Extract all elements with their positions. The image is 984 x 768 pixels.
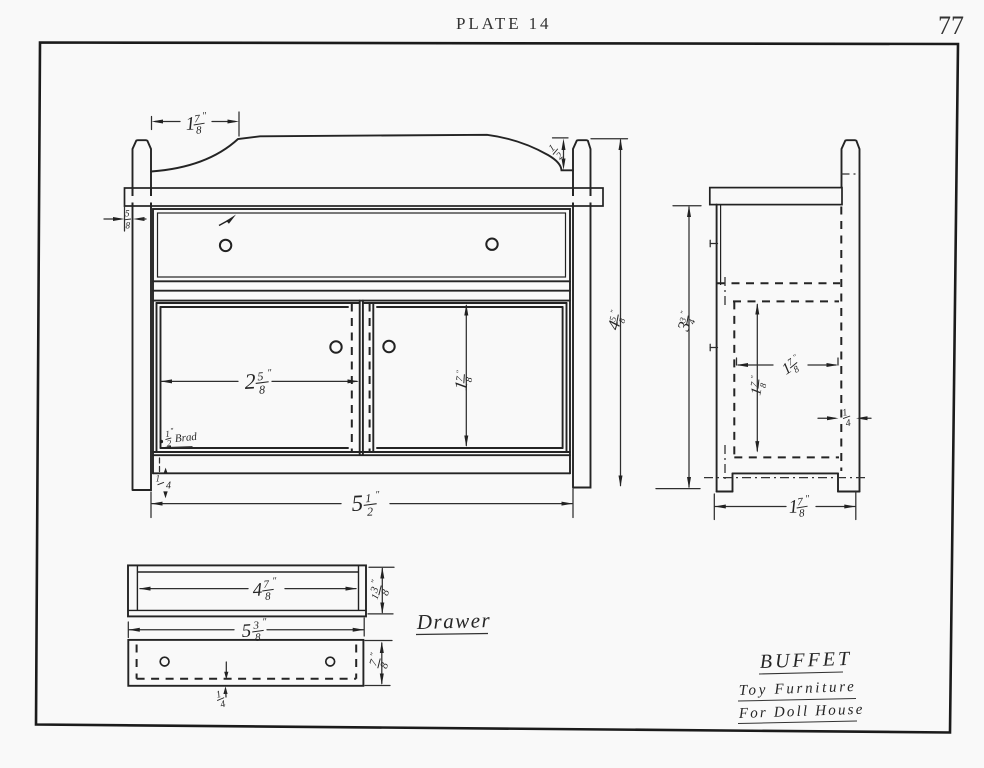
svg-text:″: ″ <box>805 494 811 505</box>
svg-text:Toy Furniture: Toy Furniture <box>739 679 857 699</box>
svg-text:″: ″ <box>454 369 464 375</box>
svg-text:5: 5 <box>241 621 252 642</box>
svg-text:1: 1 <box>365 491 372 505</box>
svg-text:5: 5 <box>125 209 130 219</box>
svg-text:8: 8 <box>378 661 391 671</box>
svg-text:5: 5 <box>351 490 364 516</box>
svg-text:″: ″ <box>272 576 278 587</box>
svg-text:8: 8 <box>379 588 392 598</box>
svg-text:8: 8 <box>464 376 475 383</box>
svg-text:8: 8 <box>259 382 266 396</box>
svg-text:5: 5 <box>257 369 264 383</box>
svg-text:8: 8 <box>799 507 806 519</box>
svg-text:For Doll House: For Doll House <box>738 702 865 722</box>
svg-text:″: ″ <box>262 617 268 628</box>
svg-text:Brad: Brad <box>174 431 198 445</box>
svg-text:77: 77 <box>938 11 964 40</box>
svg-text:8: 8 <box>126 221 131 231</box>
svg-text:″: ″ <box>202 111 208 122</box>
svg-text:″: ″ <box>375 490 381 501</box>
svg-text:BUFFET: BUFFET <box>759 648 852 673</box>
svg-text:8: 8 <box>265 591 272 603</box>
svg-text:2: 2 <box>367 504 374 518</box>
svg-text:8: 8 <box>196 124 203 136</box>
svg-text:4: 4 <box>845 418 852 430</box>
svg-text:7: 7 <box>263 579 270 591</box>
svg-text:8: 8 <box>255 632 262 644</box>
svg-text:″: ″ <box>679 309 689 315</box>
svg-text:1: 1 <box>156 474 161 484</box>
svg-text:4: 4 <box>166 481 171 492</box>
svg-text:4: 4 <box>252 579 263 600</box>
svg-text:3: 3 <box>252 620 260 632</box>
svg-text:″: ″ <box>791 352 799 362</box>
svg-text:″: ″ <box>369 578 380 585</box>
svg-text:Drawer: Drawer <box>416 608 492 634</box>
svg-text:4: 4 <box>219 699 227 711</box>
svg-text:PLATE 14: PLATE 14 <box>456 14 551 33</box>
svg-text:8: 8 <box>758 382 769 389</box>
svg-text:2: 2 <box>244 368 256 394</box>
svg-text:″: ″ <box>368 651 379 658</box>
svg-text:″: ″ <box>609 308 619 314</box>
svg-text:″: ″ <box>267 368 273 379</box>
